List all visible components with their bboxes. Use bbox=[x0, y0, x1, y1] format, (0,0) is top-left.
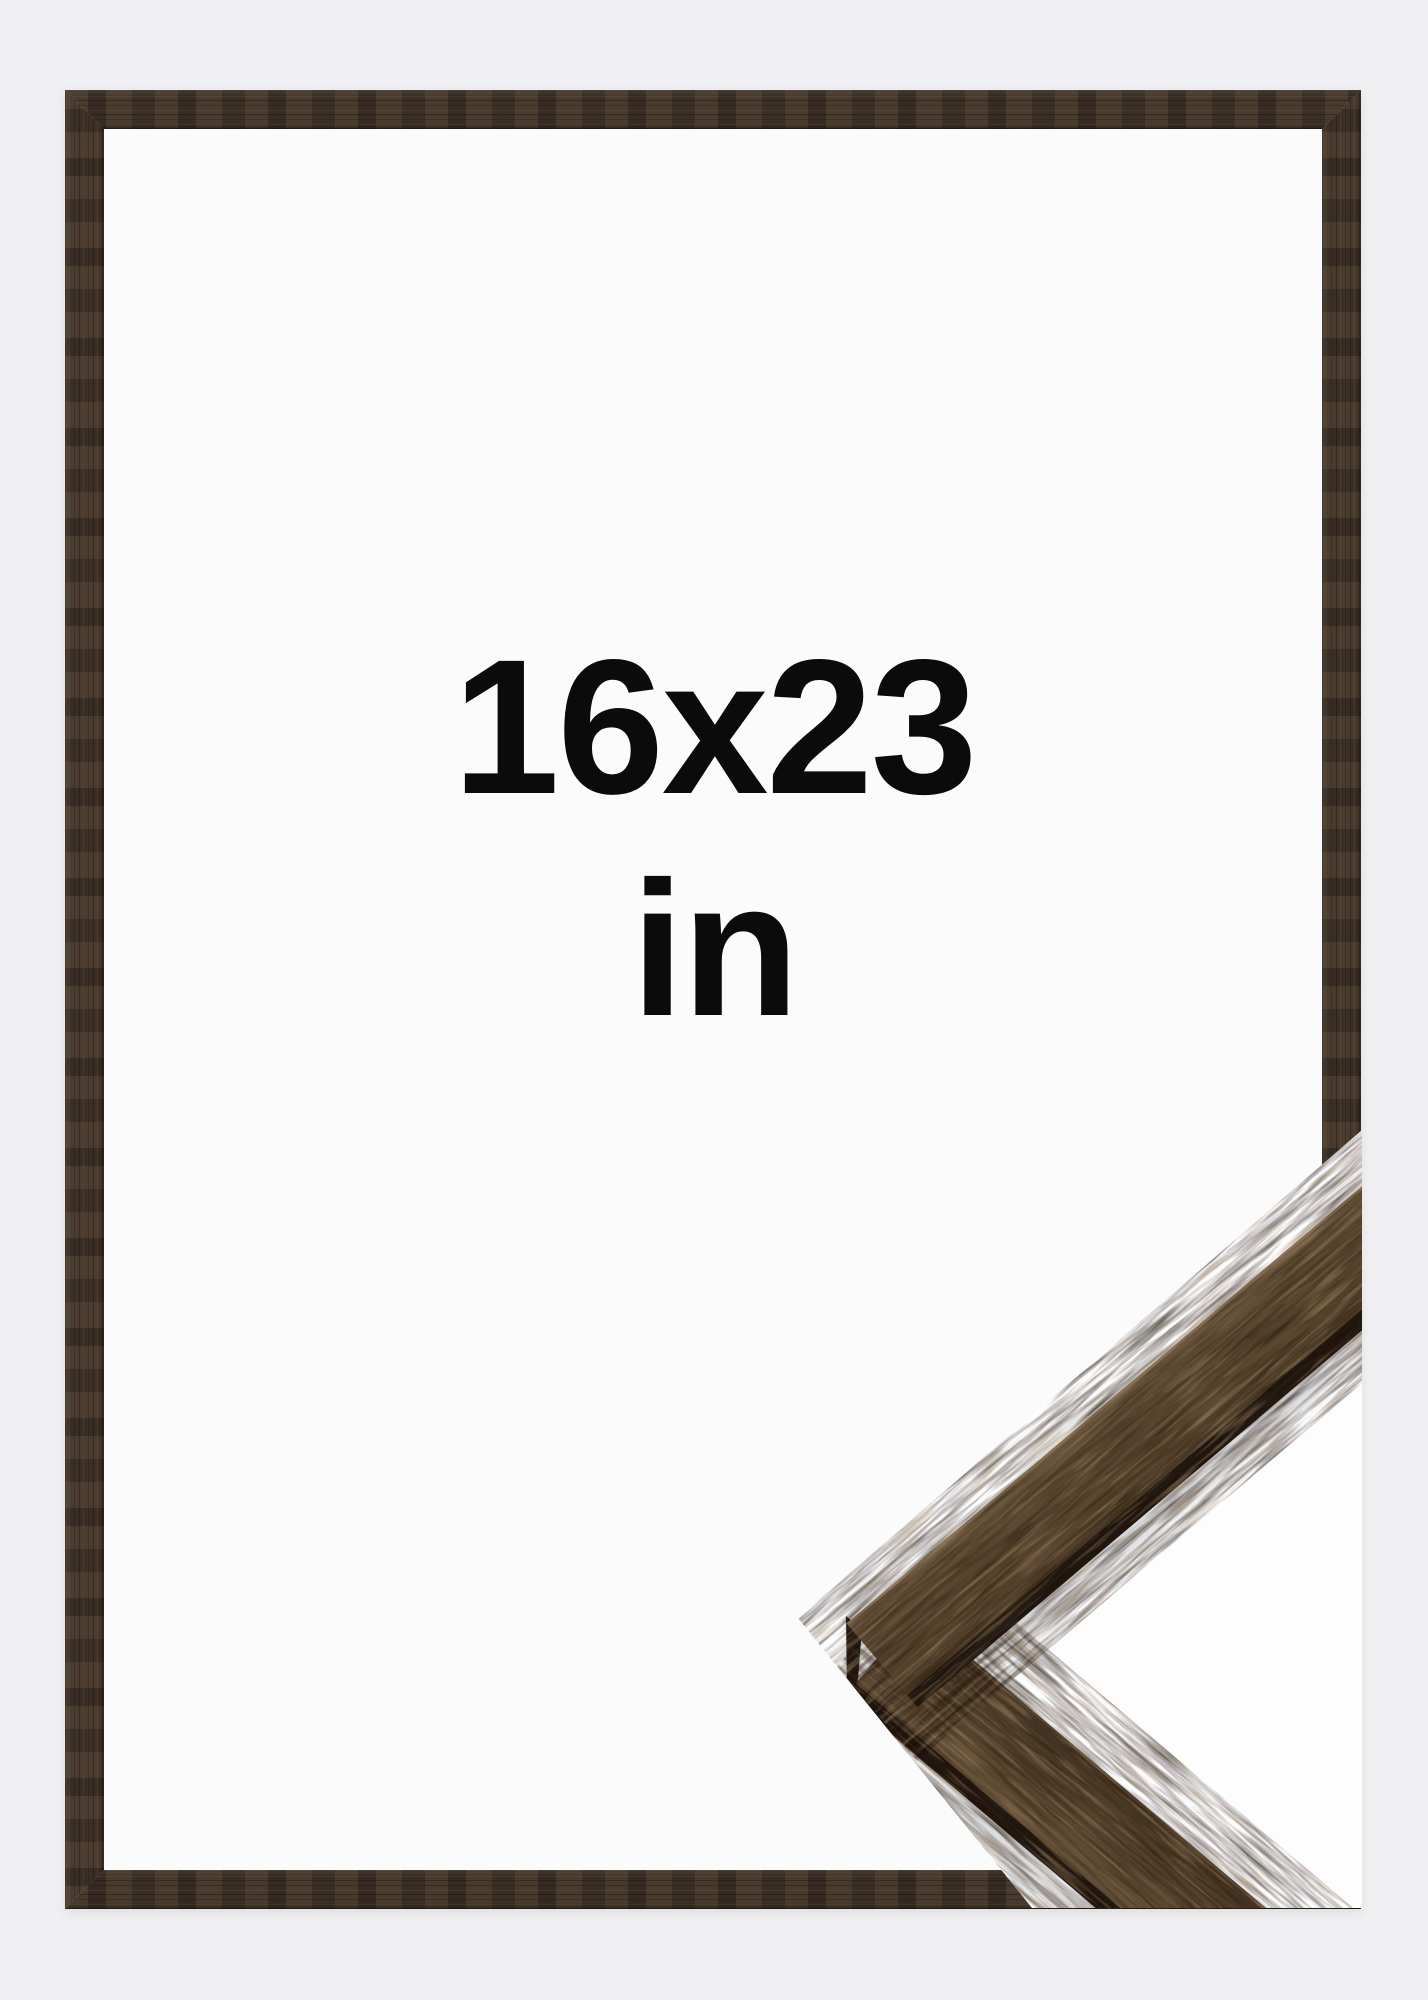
frame-bar-bottom bbox=[65, 1870, 1361, 1909]
product-photo-canvas: 16x23 in bbox=[0, 0, 1428, 2000]
frame-bar-top bbox=[65, 90, 1361, 129]
size-label: 16x23 bbox=[0, 616, 1428, 838]
size-caption: 16x23 in bbox=[0, 616, 1428, 1060]
unit-label: in bbox=[0, 838, 1428, 1060]
